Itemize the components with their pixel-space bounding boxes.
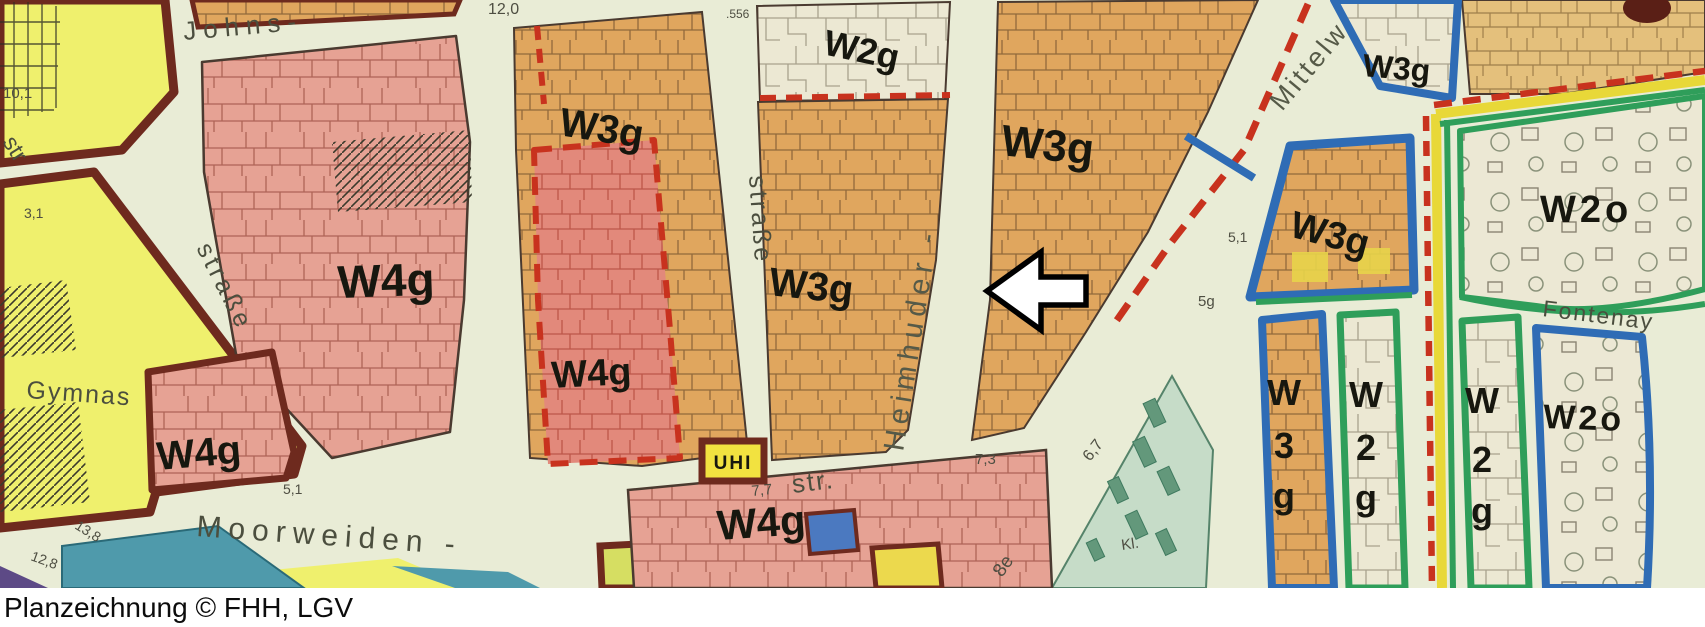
zone-label-w4g-strip: W4g xyxy=(550,351,632,397)
zone-label-w3g-topright: W3g xyxy=(1361,47,1431,89)
measurement-5g: 5g xyxy=(1198,293,1215,310)
zone-label-strip-w2g-a-2: 2 xyxy=(1356,427,1376,468)
zone-label-strip-w2g-a-w: W xyxy=(1349,374,1383,415)
zone-label-w4g-main: W4g xyxy=(337,253,436,308)
street-label-str-abbr: str. xyxy=(790,464,836,499)
zone-label-strip-w2g-a-g: g xyxy=(1355,477,1377,518)
zone-label-strip-w2g-b-2: 2 xyxy=(1472,439,1492,480)
measurement-556: .556 xyxy=(726,7,750,21)
boundary-yellow-vertical xyxy=(1436,114,1442,588)
block-w2o-bottom xyxy=(1536,328,1650,588)
zone-label-strip-w3g-w: W xyxy=(1267,372,1301,413)
measurement-10-1: 10,1 xyxy=(3,85,32,102)
zone-label-strip-w3g-g: g xyxy=(1273,475,1295,516)
measurement-12-0: 12,0 xyxy=(488,1,519,18)
measurement-7-3: 7,3 xyxy=(975,451,996,468)
zone-label-w4g-left: W4g xyxy=(155,428,243,479)
vhi-marker: UHI xyxy=(702,441,764,481)
block-w3g-strip-a xyxy=(1262,314,1334,588)
measurement-5-1-left: 5,1 xyxy=(283,481,303,497)
zone-label-w2o-top: W2o xyxy=(1540,189,1632,231)
hatch-area-2 xyxy=(0,402,90,512)
caption-bar: Planzeichnung © FHH, LGV xyxy=(0,588,1705,627)
measurement-3-1: 3,1 xyxy=(24,205,44,221)
hatch-area-1 xyxy=(0,280,76,358)
vhi-label: UHI xyxy=(714,453,753,474)
blue-box-bottom xyxy=(806,510,858,554)
zone-label-w3g-center: W3g xyxy=(767,260,856,313)
measurement-5-1-right: 5,1 xyxy=(1228,229,1248,245)
street-label-kl: Kl. xyxy=(1120,535,1140,554)
zone-label-strip-w2g-b-w: W xyxy=(1465,380,1499,421)
caption-text: Planzeichnung © FHH, LGV xyxy=(4,592,353,624)
zoning-map: UHI Johns- straße straße str Gymnas Heim… xyxy=(0,0,1705,588)
zone-label-w2o-bottom: W2o xyxy=(1543,398,1625,439)
hatch-area-pink xyxy=(332,130,472,212)
zone-label-w3g-right: W3g xyxy=(999,116,1097,174)
yellow-box-bottom xyxy=(872,544,942,588)
zone-label-strip-w3g-3: 3 xyxy=(1274,425,1294,466)
measurement-7-7: 7,7 xyxy=(751,481,774,500)
yellow-patch-1 xyxy=(1292,252,1328,282)
zone-label-strip-w2g-b-g: g xyxy=(1471,490,1493,531)
zone-label-w4g-bottom: W4g xyxy=(715,496,807,549)
